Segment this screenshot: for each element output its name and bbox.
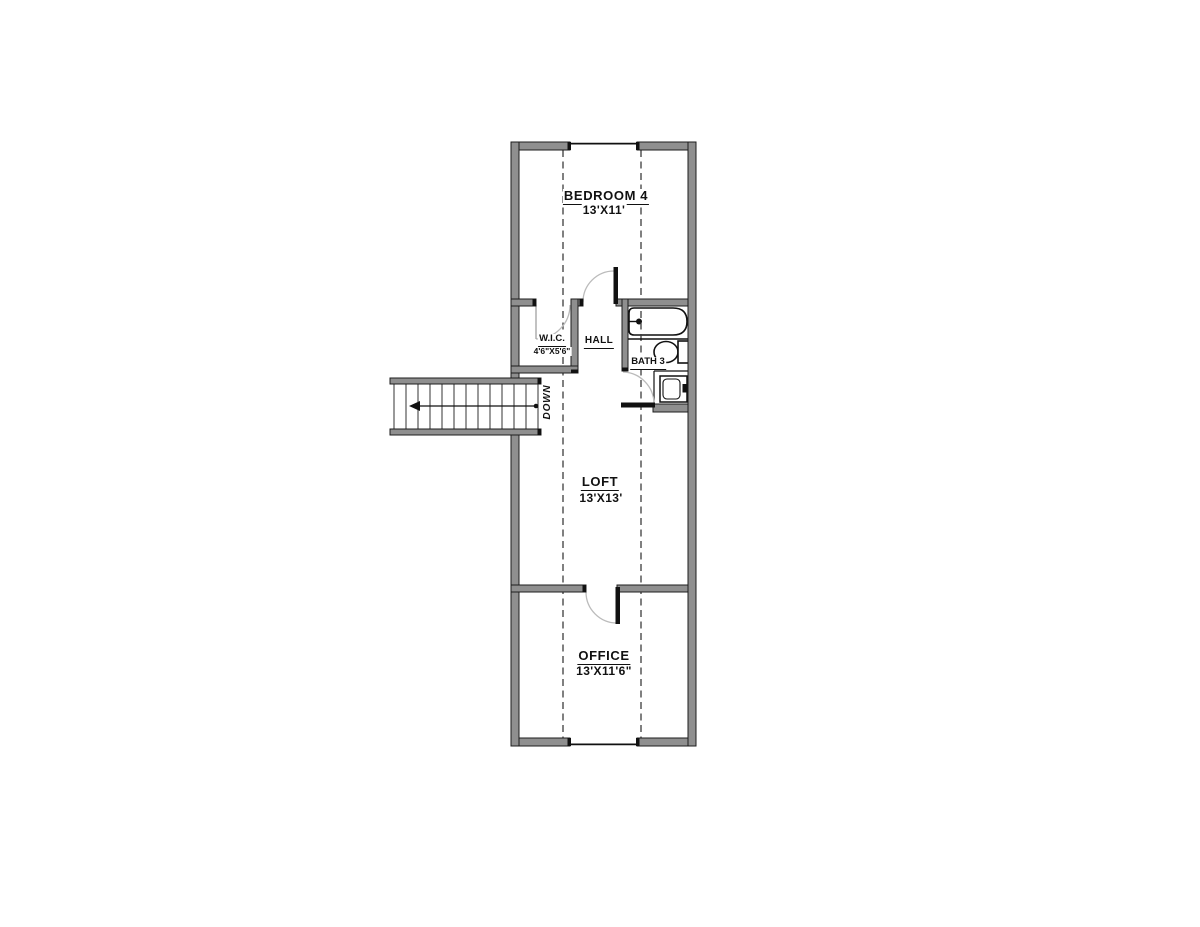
floor-plan-page: BEDROOM 4 13'X11' W.I.C. 4'6"X5'6" HALL … [0, 0, 1200, 927]
room-dims-office: 13'X11'6" [575, 665, 633, 677]
floor-plan-drawing [0, 0, 1200, 927]
room-label-bath3: BATH 3 [630, 357, 666, 370]
down-arrow-icon [409, 401, 538, 411]
room-dims-wic: 4'6"X5'6" [533, 347, 572, 356]
room-label-office: OFFICE [577, 649, 630, 665]
walls [390, 142, 696, 746]
room-label-loft: LOFT [581, 475, 619, 491]
bathtub-icon [626, 308, 687, 335]
room-dims-bedroom4: 13'X11' [582, 204, 627, 216]
room-dims-loft: 13'X13' [578, 492, 623, 504]
stairs [394, 384, 538, 429]
sink-vanity-icon [654, 371, 690, 404]
room-label-wic: W.I.C. [538, 334, 566, 347]
room-label-hall: HALL [584, 336, 614, 349]
stairs-down-label: DOWN [543, 384, 553, 421]
